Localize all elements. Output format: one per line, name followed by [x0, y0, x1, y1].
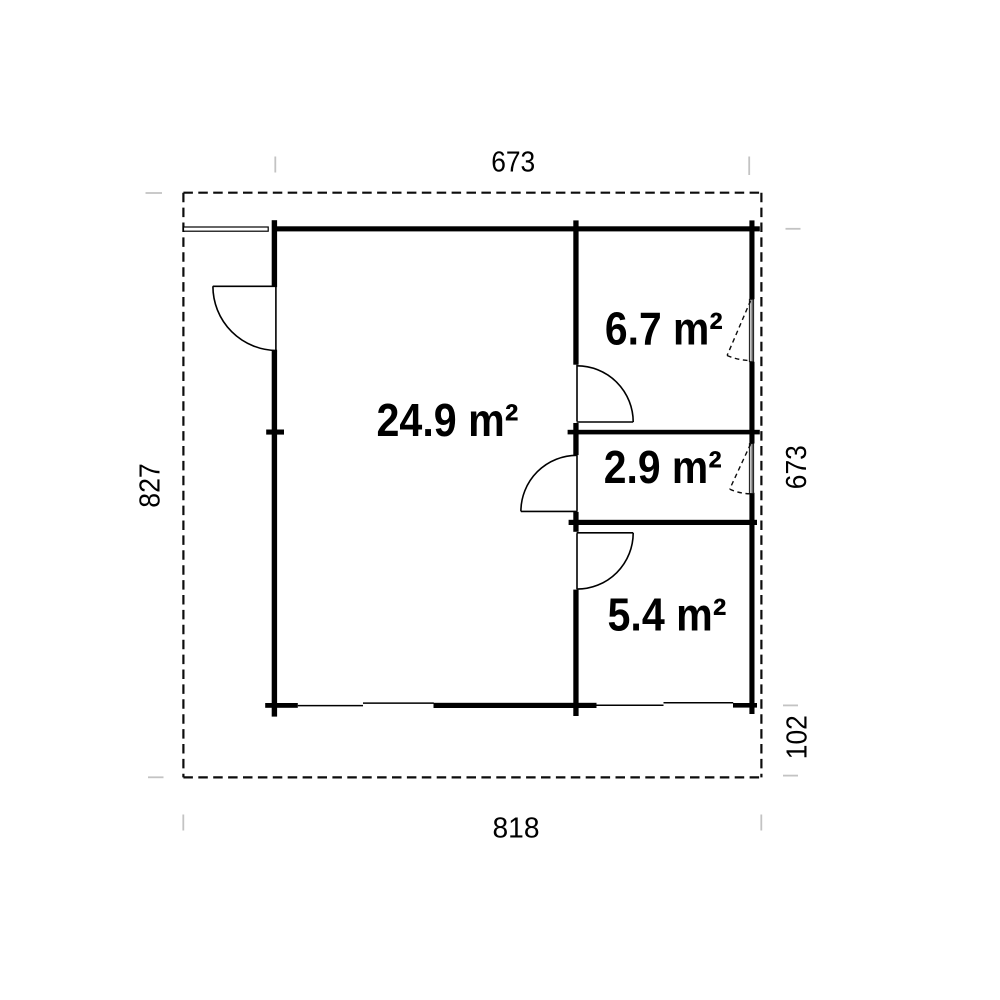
svg-text:6.7 m²: 6.7 m²	[605, 303, 723, 355]
svg-text:102: 102	[781, 715, 813, 759]
svg-text:2.9 m²: 2.9 m²	[604, 441, 722, 493]
svg-text:827: 827	[135, 463, 167, 508]
svg-text:818: 818	[493, 812, 540, 844]
svg-text:673: 673	[781, 445, 813, 489]
svg-text:5.4 m²: 5.4 m²	[608, 589, 727, 641]
svg-text:673: 673	[491, 146, 535, 178]
svg-text:24.9 m²: 24.9 m²	[377, 394, 519, 446]
